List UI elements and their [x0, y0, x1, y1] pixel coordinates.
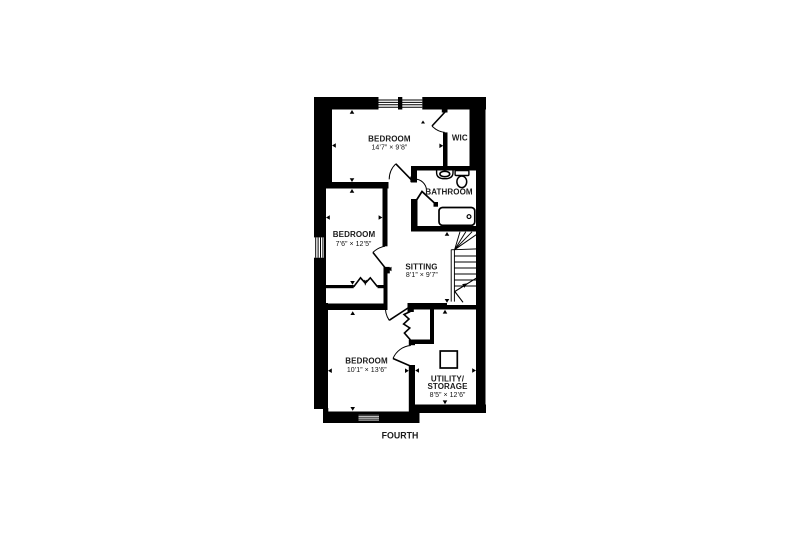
svg-text:WIC: WIC	[452, 133, 468, 142]
svg-text:BEDROOM: BEDROOM	[333, 230, 376, 239]
svg-text:8’5” × 12’6”: 8’5” × 12’6”	[430, 392, 466, 399]
svg-text:14’7” × 9’8”: 14’7” × 9’8”	[371, 145, 407, 152]
svg-text:BEDROOM: BEDROOM	[368, 135, 411, 144]
svg-text:SITTING: SITTING	[405, 263, 437, 272]
svg-text:FOURTH: FOURTH	[382, 430, 419, 440]
svg-text:BATHROOM: BATHROOM	[425, 188, 473, 197]
svg-text:10’1” × 13’6”: 10’1” × 13’6”	[347, 367, 387, 374]
svg-text:7’6” × 12’5”: 7’6” × 12’5”	[336, 241, 372, 248]
svg-text:BEDROOM: BEDROOM	[345, 356, 388, 365]
svg-text:STORAGE: STORAGE	[427, 382, 468, 391]
svg-text:8’1” × 9’7”: 8’1” × 9’7”	[406, 272, 438, 279]
